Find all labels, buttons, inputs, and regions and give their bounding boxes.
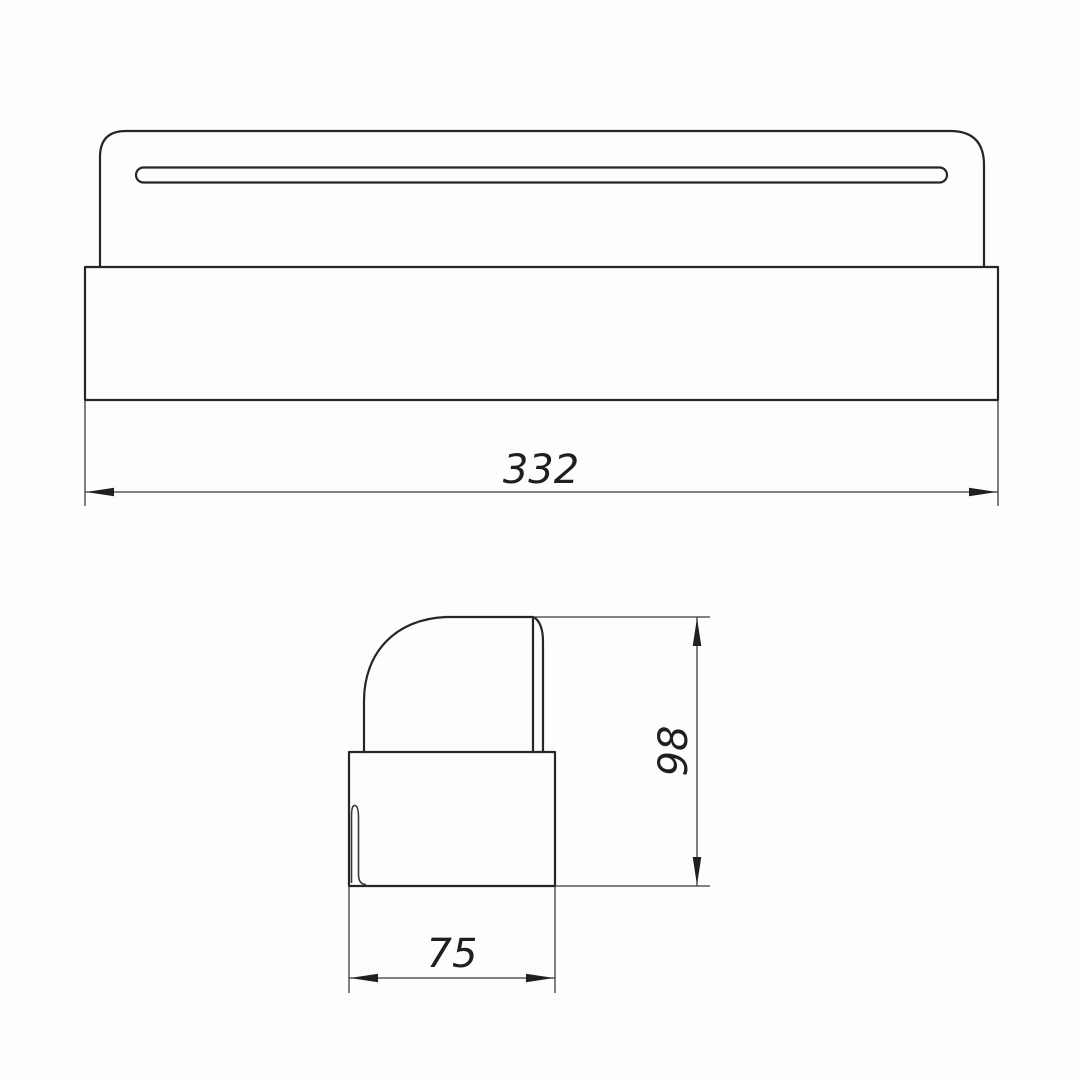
front-view: 332 bbox=[85, 131, 998, 506]
arrowhead-down bbox=[693, 857, 702, 885]
dimension-height-label: 98 bbox=[651, 726, 697, 777]
dimension-depth-label: 75 bbox=[427, 931, 478, 977]
drawing-sheet: 332 98 bbox=[0, 0, 1080, 1080]
side-plate-edge-back bbox=[535, 618, 543, 752]
technical-drawing: 332 98 bbox=[0, 0, 1080, 1080]
front-base-outline bbox=[85, 267, 998, 400]
front-plate-outline bbox=[100, 131, 984, 267]
dimension-depth: 75 bbox=[349, 886, 555, 993]
dimension-width-label: 332 bbox=[503, 447, 579, 493]
arrowhead-right bbox=[526, 974, 554, 983]
arrowhead-left bbox=[86, 488, 114, 497]
mounting-slot bbox=[136, 168, 947, 183]
side-base-outline bbox=[349, 752, 555, 886]
side-view: 98 75 bbox=[349, 617, 710, 993]
dimension-height: 98 bbox=[533, 617, 710, 886]
dimension-width: 332 bbox=[85, 400, 998, 506]
side-cap-outline bbox=[364, 617, 533, 752]
arrowhead-right bbox=[969, 488, 997, 497]
side-inner-seam bbox=[352, 805, 367, 884]
arrowhead-up bbox=[693, 618, 702, 646]
arrowhead-left bbox=[350, 974, 378, 983]
